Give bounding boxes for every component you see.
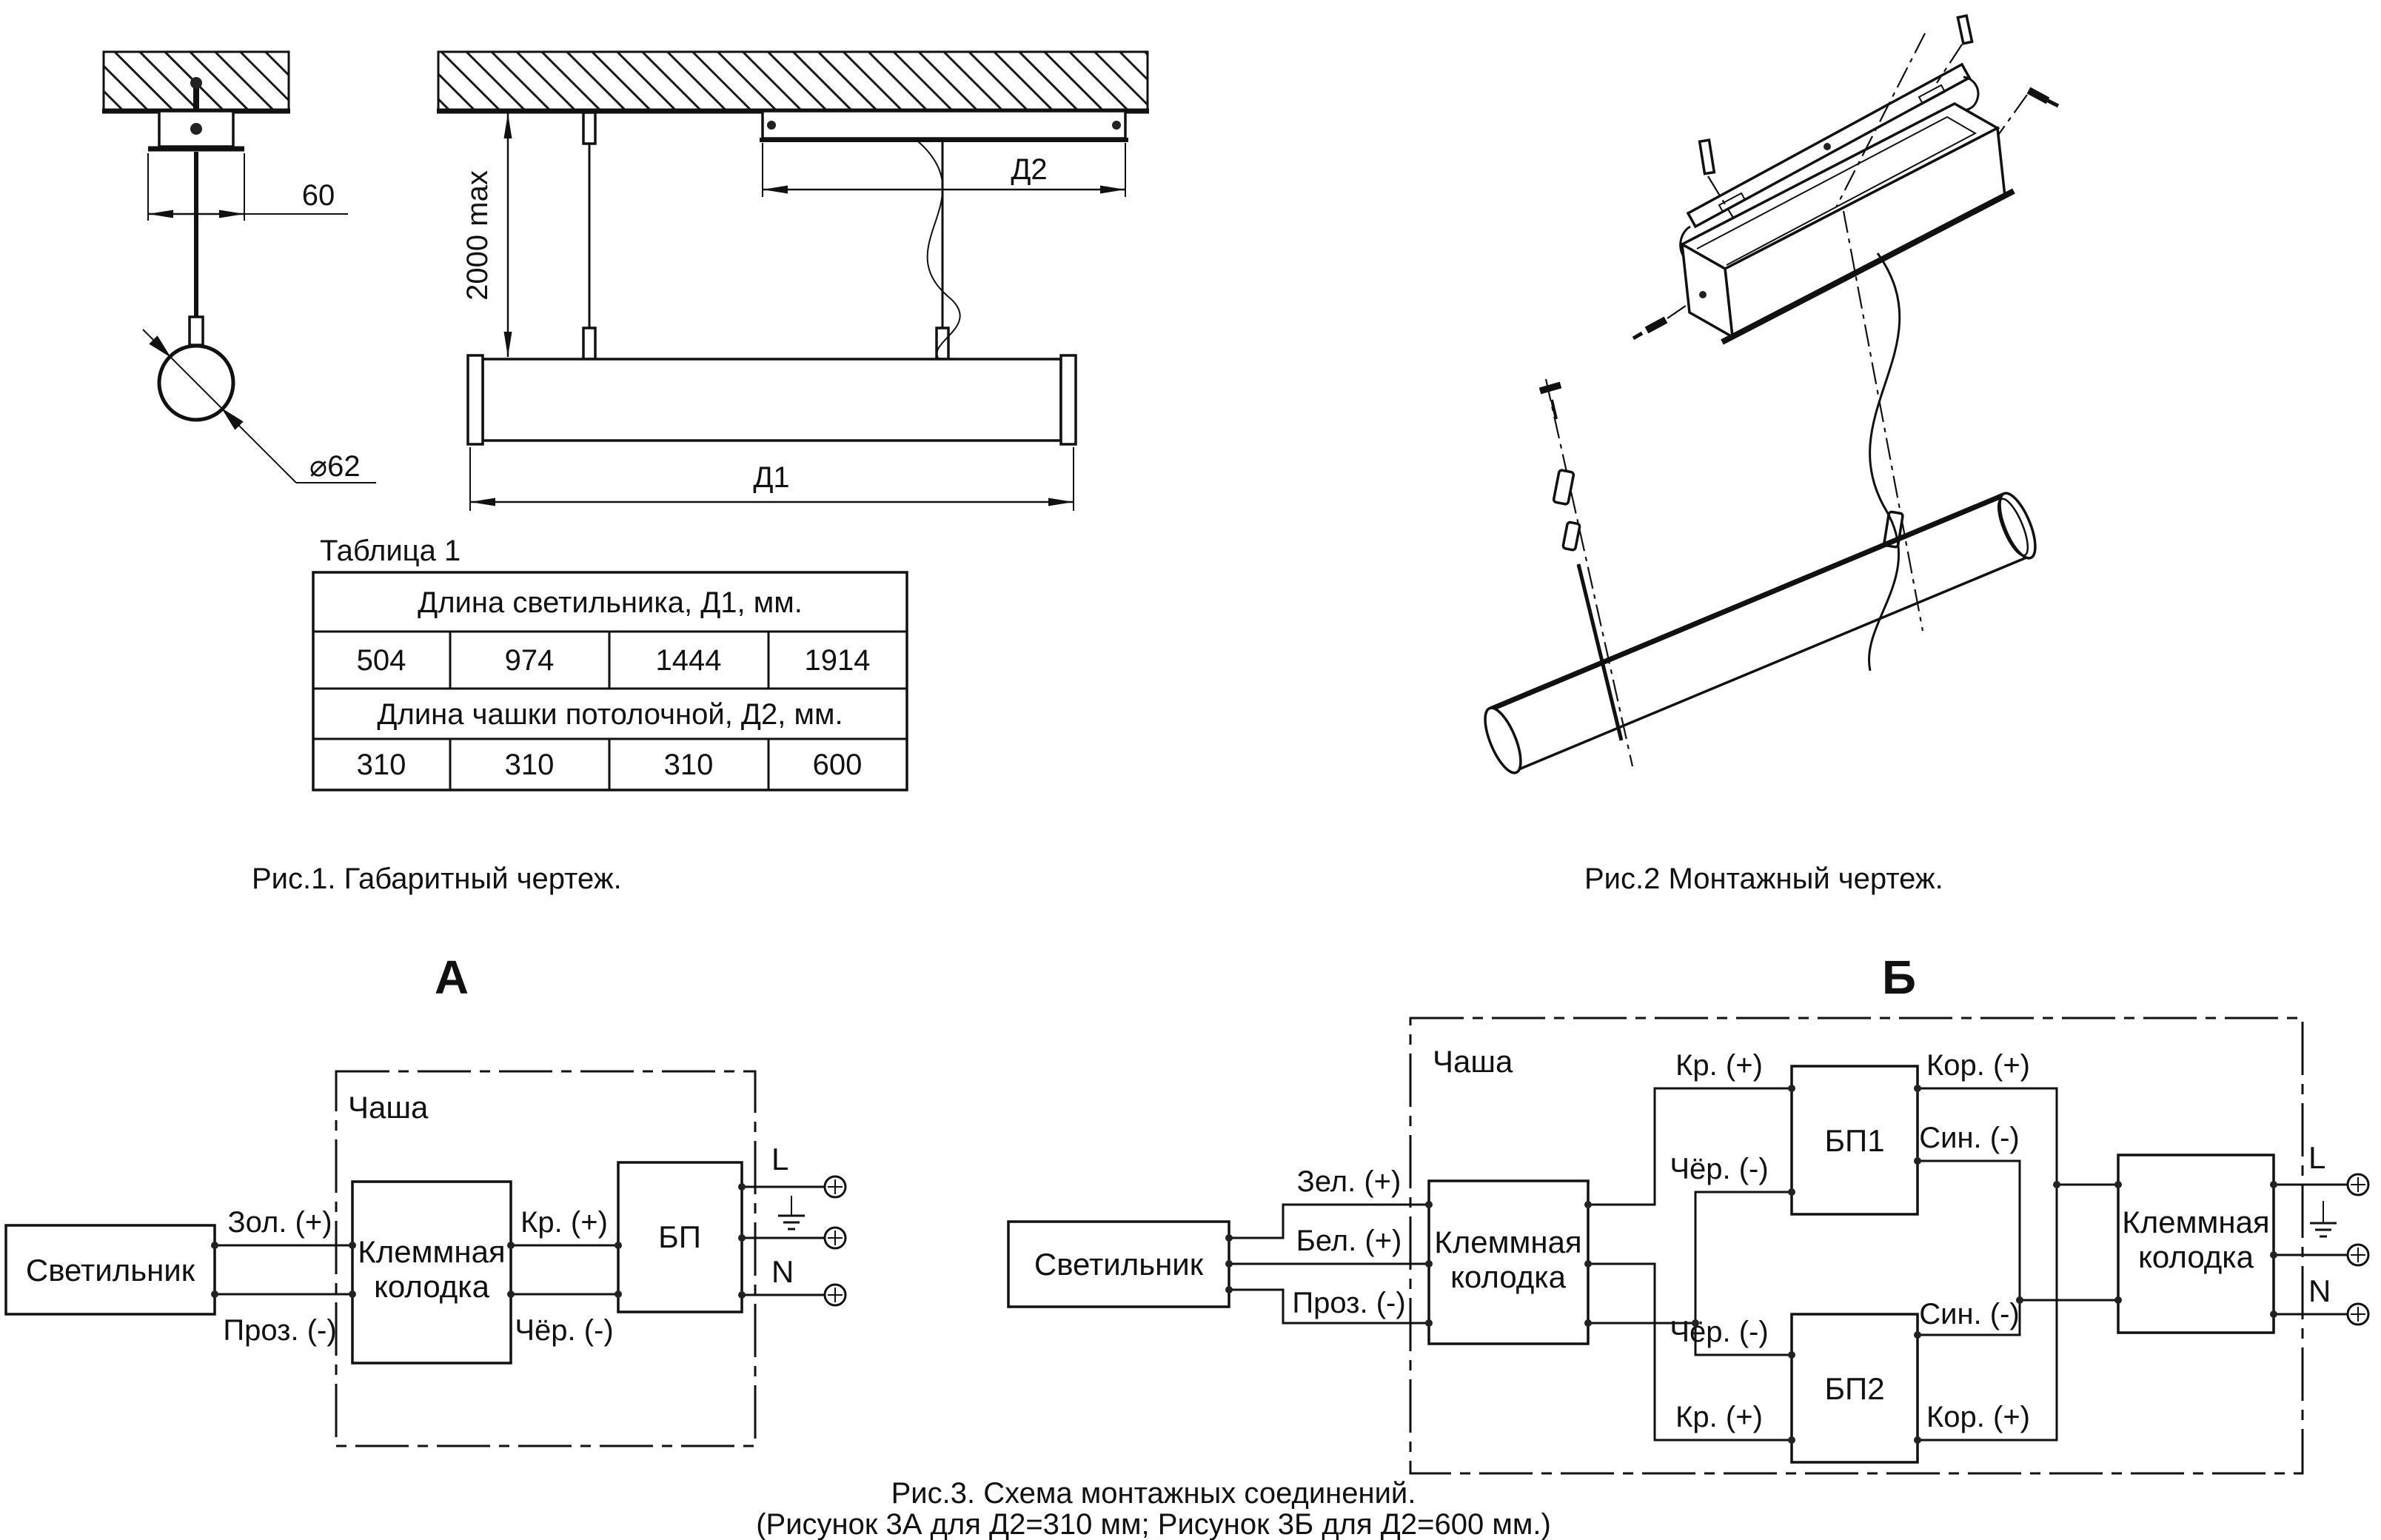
wire-label-blue: Син. (-) bbox=[1919, 1122, 2020, 1154]
table1-cell: 310 bbox=[505, 749, 555, 781]
dim-60-label: 60 bbox=[302, 179, 335, 212]
terminal-block-label: Клеммная bbox=[2122, 1205, 2269, 1239]
power-cable bbox=[1869, 253, 1899, 671]
terminal-N-label: N bbox=[771, 1254, 794, 1289]
cup-label: Чаша bbox=[1433, 1044, 1513, 1079]
fig3-variant-a: А Чаша Светильник Клеммная колодка БП Зо… bbox=[6, 951, 845, 1446]
terminal-block-label: колодка bbox=[1450, 1259, 1567, 1294]
technical-drawing-sheet: 60 ⌀62 2000 max Д2 bbox=[0, 0, 2381, 1540]
fig3-caption-line1: Рис.3. Схема монтажных соединений. bbox=[891, 1477, 1416, 1510]
wire-label-transparent: Проз. (-) bbox=[1292, 1287, 1405, 1319]
fig1-front-view: 2000 max Д2 Д1 bbox=[437, 52, 1149, 511]
terminal-block-label: Клеммная bbox=[358, 1234, 505, 1269]
luminaire-body bbox=[483, 359, 1061, 441]
screw bbox=[1993, 90, 2058, 142]
table1-cell: 600 bbox=[813, 749, 863, 781]
wire-label-blue: Син. (-) bbox=[1919, 1298, 2020, 1330]
luminaire-label: Светильник bbox=[1034, 1247, 1204, 1282]
wire-bottom-fitting bbox=[583, 328, 595, 359]
terminal-L bbox=[2348, 1174, 2368, 1195]
terminal-L-label: L bbox=[771, 1142, 788, 1176]
psu1-label: БП1 bbox=[1824, 1123, 1884, 1158]
terminal-block-label: колодка bbox=[374, 1269, 490, 1304]
terminal-N bbox=[825, 1285, 845, 1305]
luminaire-endcap-right bbox=[1061, 355, 1076, 444]
psu2-label: БП2 bbox=[1824, 1371, 1884, 1406]
dim-2000max-label: 2000 max bbox=[461, 170, 494, 301]
table1-header-d1: Длина светильника, Д1, мм. bbox=[418, 586, 803, 619]
wire-label-black: Чёр. (-) bbox=[1670, 1316, 1768, 1348]
wire-label-brown: Кор. (+) bbox=[1926, 1401, 2030, 1433]
table1-cell: 1444 bbox=[656, 644, 722, 677]
wire-label-gold: Зол. (+) bbox=[227, 1206, 332, 1239]
luminaire-endcap-left bbox=[468, 355, 483, 444]
cup-box-hole bbox=[1699, 291, 1707, 298]
power-cable bbox=[918, 141, 960, 359]
terminal-N-label: N bbox=[2308, 1273, 2331, 1308]
cup-label: Чаша bbox=[348, 1090, 429, 1125]
ceiling-hatch bbox=[438, 52, 1148, 111]
fig1-left-view: 60 ⌀62 bbox=[102, 52, 376, 483]
ground-symbol bbox=[2310, 1201, 2337, 1236]
terminal-L bbox=[825, 1176, 845, 1197]
terminal-L-label: L bbox=[2308, 1140, 2325, 1175]
terminal-ground bbox=[825, 1228, 845, 1248]
anchor-screw-head bbox=[190, 77, 202, 89]
terminal-block-label: колодка bbox=[2138, 1239, 2254, 1274]
table1-cell: 1914 bbox=[805, 644, 871, 677]
dim-d1-label: Д1 bbox=[753, 461, 789, 494]
luminaire-label: Светильник bbox=[26, 1253, 195, 1288]
wire-label-red: Кр. (+) bbox=[1675, 1401, 1763, 1433]
suspension-chain-left bbox=[1540, 379, 1632, 766]
wire-label-brown: Кор. (+) bbox=[1926, 1049, 2030, 1082]
table1-cell: 310 bbox=[357, 749, 406, 781]
lamp-tube bbox=[1478, 489, 2043, 777]
fig3-caption-line2: (Рисунок 3А для Д2=310 мм; Рисунок 3Б дл… bbox=[756, 1508, 1551, 1540]
terminal-N bbox=[2348, 1304, 2368, 1325]
fig2-caption: Рис.2 Монтажный чертеж. bbox=[1584, 863, 1943, 895]
cup-hole bbox=[190, 123, 202, 135]
rod-connector bbox=[190, 317, 203, 345]
table1-header-d2: Длина чашки потолочной, Д2, мм. bbox=[377, 698, 843, 731]
wire-label-black: Чёр. (-) bbox=[1670, 1153, 1768, 1185]
fig1-caption: Рис.1. Габаритный чертеж. bbox=[252, 863, 622, 895]
wire-label-green: Зел. (+) bbox=[1297, 1165, 1402, 1198]
table1-cell: 504 bbox=[357, 644, 406, 677]
wire-label-transparent: Проз. (-) bbox=[223, 1314, 336, 1347]
ceiling-cup bbox=[763, 111, 1125, 138]
table1-title: Таблица 1 bbox=[320, 535, 461, 567]
wire-label-red: Кр. (+) bbox=[520, 1206, 608, 1239]
table1-cell: 310 bbox=[664, 749, 714, 781]
wire-label-white: Бел. (+) bbox=[1296, 1225, 1402, 1257]
variant-b-label: Б bbox=[1882, 951, 1916, 1004]
dim-d2-label: Д2 bbox=[1011, 153, 1047, 186]
rail-hole bbox=[1824, 143, 1831, 150]
screw bbox=[1633, 299, 1695, 338]
table1-cell: 974 bbox=[505, 644, 555, 677]
wire-top-fitting bbox=[583, 113, 595, 144]
fig3-variant-b: Б Чаша Светильник Клеммная колодка Зел. … bbox=[1008, 951, 2368, 1473]
variant-a-label: А bbox=[435, 951, 469, 1004]
table1: Таблица 1 Длина светильника, Д1, мм. 504… bbox=[313, 535, 907, 790]
dim-diameter-label: ⌀62 bbox=[309, 450, 361, 483]
terminal-block-label: Клеммная bbox=[1434, 1225, 1581, 1259]
wire-label-black: Чёр. (-) bbox=[515, 1314, 613, 1347]
fig2-exploded-view bbox=[1478, 16, 2058, 777]
terminal-ground bbox=[2348, 1245, 2368, 1265]
psu-label: БП bbox=[658, 1219, 701, 1254]
ground-symbol bbox=[778, 1196, 805, 1229]
wire-label-red: Кр. (+) bbox=[1675, 1049, 1763, 1082]
